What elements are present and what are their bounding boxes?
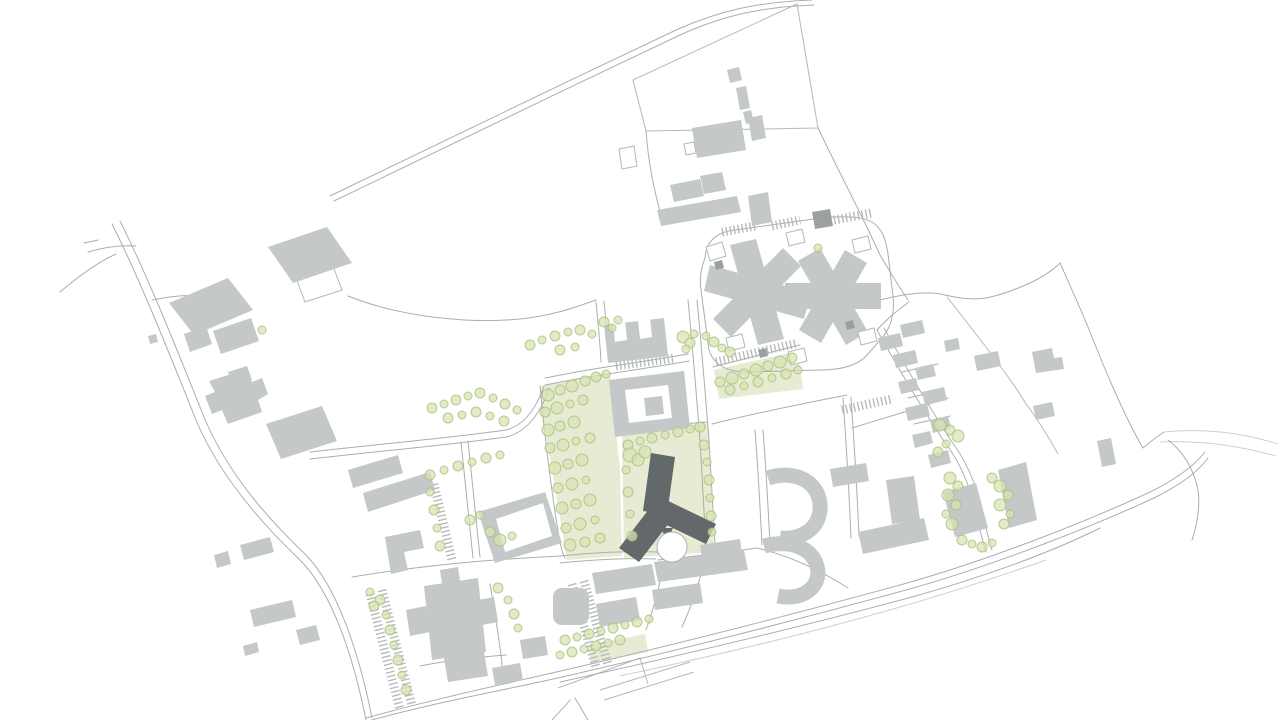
tree-icon — [946, 518, 958, 530]
tree-icon — [486, 412, 494, 420]
tree-icon — [540, 407, 550, 417]
tree-icon — [433, 524, 441, 532]
tree-icon — [504, 596, 512, 604]
road-line — [84, 240, 98, 243]
building-shape — [240, 537, 274, 560]
tree-icon — [706, 494, 714, 502]
tree-icon — [725, 385, 735, 395]
building-shape — [886, 476, 920, 524]
tree-icon — [942, 489, 954, 501]
building-shape — [900, 320, 925, 338]
tree-icon — [774, 356, 786, 368]
tree-icon — [626, 510, 634, 518]
tree-icon — [715, 377, 725, 387]
tree-icon — [740, 382, 748, 390]
building-shape — [250, 600, 296, 627]
tree-icon — [1006, 510, 1014, 518]
tree-icon — [485, 527, 495, 537]
tree-icon — [494, 534, 506, 546]
building-shape — [893, 350, 918, 368]
tree-icon — [706, 511, 716, 521]
road-line — [575, 698, 588, 720]
building-shape — [905, 403, 930, 421]
building-shape — [440, 567, 461, 591]
tree-icon — [571, 343, 579, 351]
building-inner-shape — [644, 396, 664, 416]
tree-icon — [513, 406, 521, 414]
tree-icon — [753, 377, 763, 387]
tree-icon — [426, 488, 434, 496]
tree-icon — [481, 453, 491, 463]
tree-icon — [545, 443, 555, 453]
tree-icon — [509, 609, 519, 619]
tree-icon — [794, 366, 802, 374]
site-plan-map — [0, 0, 1280, 720]
tree-icon — [580, 537, 590, 547]
tree-icon — [690, 330, 698, 338]
tree-icon — [557, 439, 569, 451]
tree-icon — [585, 433, 595, 443]
tree-icon — [566, 478, 578, 490]
building-shape — [424, 578, 486, 660]
road-line — [1060, 263, 1143, 448]
tree-icon — [582, 476, 590, 484]
tree-icon — [468, 458, 476, 466]
tree-icon — [496, 451, 504, 459]
tree-icon — [443, 413, 453, 423]
tree-icon — [435, 541, 445, 551]
tree-icon — [550, 331, 560, 341]
tree-icon — [739, 369, 749, 379]
tree-icon — [580, 645, 588, 653]
road-line — [552, 700, 570, 720]
roundabout — [657, 532, 687, 562]
building-shape — [1032, 348, 1064, 373]
road-line — [646, 131, 662, 218]
road-line — [596, 302, 601, 362]
tree-icon — [588, 330, 596, 338]
tree-icon — [551, 402, 563, 414]
building-shape — [268, 227, 352, 283]
building-shape — [830, 463, 869, 487]
tree-icon — [390, 641, 398, 649]
road-line — [880, 263, 1060, 300]
tree-icon — [451, 395, 461, 405]
tree-icon — [622, 466, 630, 474]
tree-icon — [942, 510, 950, 518]
tree-icon — [382, 611, 390, 619]
parcel-outline — [604, 672, 694, 700]
building-shape — [748, 192, 772, 226]
tree-icon — [988, 539, 996, 547]
tree-icon — [702, 332, 710, 340]
tree-icon — [597, 627, 605, 635]
tree-icon — [591, 641, 601, 651]
tree-icon — [695, 422, 705, 432]
building-shape — [944, 338, 960, 352]
tree-icon — [591, 516, 599, 524]
building-shape — [878, 333, 903, 351]
tree-icon — [575, 325, 585, 335]
tree-icon — [555, 385, 565, 395]
building-shape — [406, 606, 430, 636]
courtyard-shape — [638, 318, 652, 339]
tree-icon — [968, 540, 976, 548]
building-shape — [912, 431, 933, 448]
tree-icon — [465, 515, 475, 525]
tree-icon — [608, 324, 616, 332]
building-shape — [922, 387, 947, 405]
building-shape — [1033, 402, 1055, 420]
tree-icon — [385, 625, 395, 635]
tree-icon — [763, 361, 773, 371]
tree-icon — [673, 427, 683, 437]
tree-icon — [542, 424, 554, 436]
tree-icon — [708, 528, 716, 536]
tree-icon — [632, 617, 642, 627]
parcel-outline — [600, 662, 690, 690]
building-shape — [1097, 438, 1116, 467]
tree-icon — [725, 347, 735, 357]
tree-icon — [608, 623, 618, 633]
curved-building-shape — [768, 475, 820, 538]
tree-icon — [493, 583, 503, 593]
tree-icon — [489, 394, 497, 402]
buildings — [148, 67, 1116, 685]
parcel-outline — [633, 4, 818, 131]
tree-icon — [580, 376, 590, 386]
tree-icon — [703, 458, 711, 466]
tree-icon — [953, 481, 963, 491]
tree-icon — [538, 336, 546, 344]
tree-icon — [942, 440, 950, 448]
road-line — [1143, 432, 1164, 448]
building-shape — [915, 364, 936, 380]
tree-icon — [994, 499, 1006, 511]
tree-icon — [555, 421, 565, 431]
tree-icon — [768, 374, 776, 382]
parcel-outline — [619, 146, 637, 169]
tree-icon — [366, 588, 374, 596]
parcel-outline — [947, 297, 1026, 404]
tree-icon — [636, 437, 644, 445]
tree-icon — [623, 487, 633, 497]
tree-icon — [627, 531, 637, 541]
tree-icon — [645, 615, 653, 623]
road-line — [60, 254, 116, 292]
tree-icon — [682, 345, 690, 353]
tree-icon — [977, 542, 987, 552]
building-shape — [652, 583, 703, 610]
tree-icon — [561, 523, 571, 533]
tree-icon — [556, 502, 568, 514]
tree-icon — [525, 340, 535, 350]
tree-icon — [567, 647, 577, 657]
building-shape — [974, 351, 1001, 371]
parcel-outline — [684, 142, 696, 155]
tree-icon — [560, 635, 570, 645]
building-shape — [692, 120, 746, 158]
tree-icon — [471, 407, 481, 417]
building-shape — [148, 334, 158, 344]
curved-building-shape — [764, 544, 818, 597]
building-shape — [520, 636, 548, 659]
building-shape — [553, 588, 589, 625]
tree-icon — [555, 345, 565, 355]
parking-strip — [842, 399, 892, 410]
tree-icon — [508, 532, 516, 540]
tree-icon — [661, 431, 669, 439]
building-shape — [296, 625, 320, 645]
building-shape — [748, 115, 766, 141]
tree-icon — [393, 655, 403, 665]
road-line — [366, 452, 1205, 718]
building-shape — [243, 642, 259, 656]
road-line — [88, 246, 136, 252]
tree-icon — [564, 539, 576, 551]
tree-icon — [564, 328, 572, 336]
tree-icon — [614, 316, 622, 324]
tree-icon — [726, 372, 738, 384]
road-line — [763, 430, 770, 544]
tree-icon — [615, 635, 625, 645]
tree-icon — [686, 425, 694, 433]
tree-icon — [578, 395, 588, 405]
tree-icon — [258, 326, 266, 334]
tree-icon — [566, 400, 574, 408]
tree-icon — [584, 629, 594, 639]
tree-icon — [563, 459, 573, 469]
tree-icon — [699, 440, 709, 450]
tree-icon — [464, 392, 472, 400]
tree-icon — [595, 533, 605, 543]
tree-icon — [398, 671, 406, 679]
building-inner — [644, 396, 664, 416]
tree-icon — [951, 500, 961, 510]
parking-strip — [722, 226, 755, 232]
roundabout-circle — [657, 532, 687, 562]
tree-icon — [1003, 490, 1013, 500]
tree-icon — [549, 462, 561, 474]
building-shape — [492, 663, 523, 685]
building-shape — [657, 196, 741, 226]
road-line — [348, 296, 596, 321]
building-shape — [592, 564, 656, 594]
tree-icon — [566, 380, 578, 392]
tree-icon — [425, 470, 435, 480]
tree-icon — [571, 499, 581, 509]
tree-icon — [476, 511, 484, 519]
tree-icon — [573, 633, 581, 641]
road-line — [755, 430, 762, 545]
outline-building-shape — [786, 229, 805, 246]
tree-icon — [574, 518, 586, 530]
building-shape — [727, 67, 742, 83]
tree-icon — [957, 535, 967, 545]
tree-icon — [572, 437, 580, 445]
tree-icon — [429, 505, 439, 515]
tree-icon — [952, 430, 964, 442]
tree-icon — [440, 466, 448, 474]
tree-icon — [453, 461, 463, 471]
tree-icon — [584, 494, 596, 506]
tree-icon — [704, 475, 714, 485]
tree-icon — [553, 483, 563, 493]
tree-icon — [621, 621, 629, 629]
tree-icon — [440, 400, 448, 408]
tree-icon — [781, 369, 791, 379]
tree-icon — [934, 419, 946, 431]
building-shape — [898, 378, 919, 394]
tree-icon — [568, 416, 580, 428]
tree-icon — [576, 454, 588, 466]
tree-icon — [647, 433, 657, 443]
building-shape — [184, 326, 212, 352]
road-line — [1168, 440, 1199, 540]
building-shape — [812, 209, 833, 229]
building-shape — [214, 551, 231, 568]
outline-building-shape — [852, 236, 871, 253]
tree-icon — [401, 685, 411, 695]
tree-icon — [369, 601, 379, 611]
road-line — [712, 395, 847, 424]
building-shape — [736, 86, 750, 110]
tree-icon — [499, 416, 509, 426]
tree-icon — [556, 651, 564, 659]
tree-icon — [542, 389, 554, 401]
tree-icon — [709, 337, 719, 347]
road-line — [120, 221, 372, 718]
tree-icon — [599, 317, 609, 327]
site-plan — [0, 0, 1280, 720]
tree-icon — [999, 519, 1009, 529]
building-shape — [670, 179, 704, 202]
tree-icon — [458, 411, 466, 419]
tree-icon — [639, 446, 651, 458]
tree-icon — [933, 447, 943, 457]
tree-icon — [787, 353, 797, 363]
tree-icon — [602, 370, 610, 378]
building-shape — [700, 172, 726, 194]
tree-icon — [604, 639, 612, 647]
tree-icon — [475, 388, 485, 398]
building-shape — [266, 406, 337, 459]
tree-icon — [427, 403, 437, 413]
tree-icon — [814, 244, 822, 252]
tree-icon — [514, 624, 522, 632]
tree-icon — [500, 399, 510, 409]
courtyard-shape — [613, 321, 627, 342]
tree-icon — [591, 372, 601, 382]
tree-icon — [994, 480, 1006, 492]
tree-icon — [750, 364, 762, 376]
